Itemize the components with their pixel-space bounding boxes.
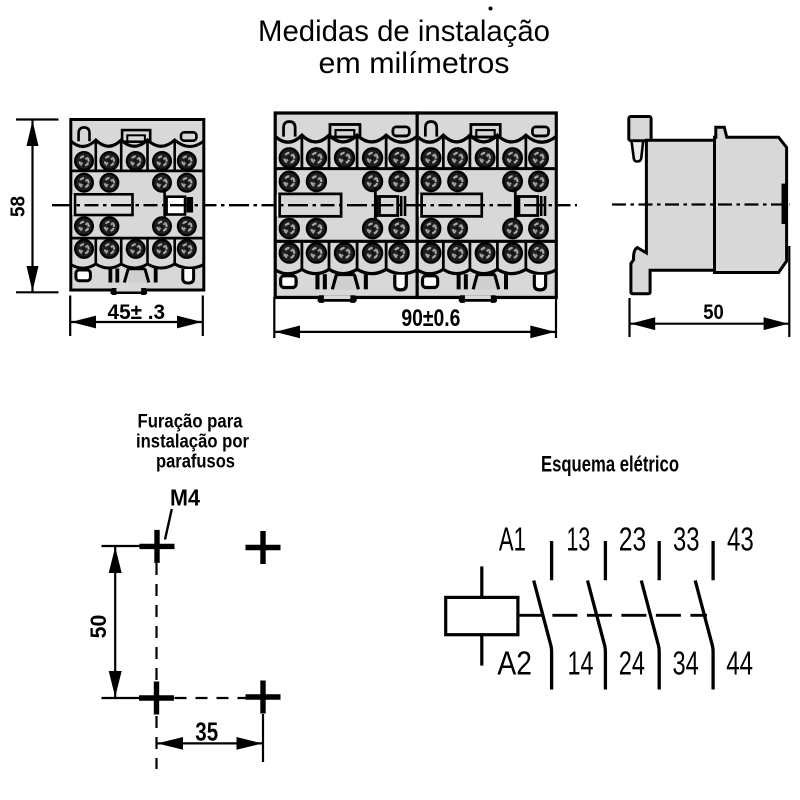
svg-text:A1: A1 <box>499 521 526 558</box>
svg-text:parafusos: parafusos <box>156 452 235 473</box>
svg-text:44: 44 <box>726 645 753 682</box>
svg-text:33: 33 <box>673 521 700 558</box>
svg-text:34: 34 <box>673 645 699 682</box>
svg-text:instalação por: instalação por <box>136 432 250 453</box>
svg-text:Medidas de instalação: Medidas de instalação <box>258 15 550 48</box>
svg-text:Esquema elétrico: Esquema elétrico <box>541 452 679 477</box>
svg-text:50: 50 <box>703 301 724 324</box>
svg-text:43: 43 <box>727 521 754 558</box>
svg-text:45± .3: 45± .3 <box>108 300 166 324</box>
svg-text:14: 14 <box>568 645 594 682</box>
svg-text:23: 23 <box>619 521 647 558</box>
svg-text:M4: M4 <box>170 485 200 511</box>
svg-text:35: 35 <box>195 717 218 747</box>
svg-text:A2: A2 <box>497 645 532 682</box>
svg-text:13: 13 <box>567 521 591 558</box>
svg-text:Furação para: Furação para <box>138 412 243 433</box>
svg-text:58: 58 <box>6 196 29 217</box>
svg-text:90±0.6: 90±0.6 <box>401 305 460 332</box>
svg-text:50: 50 <box>86 615 111 639</box>
svg-text:em milímetros: em milímetros <box>319 47 510 80</box>
svg-text:24: 24 <box>619 645 645 682</box>
